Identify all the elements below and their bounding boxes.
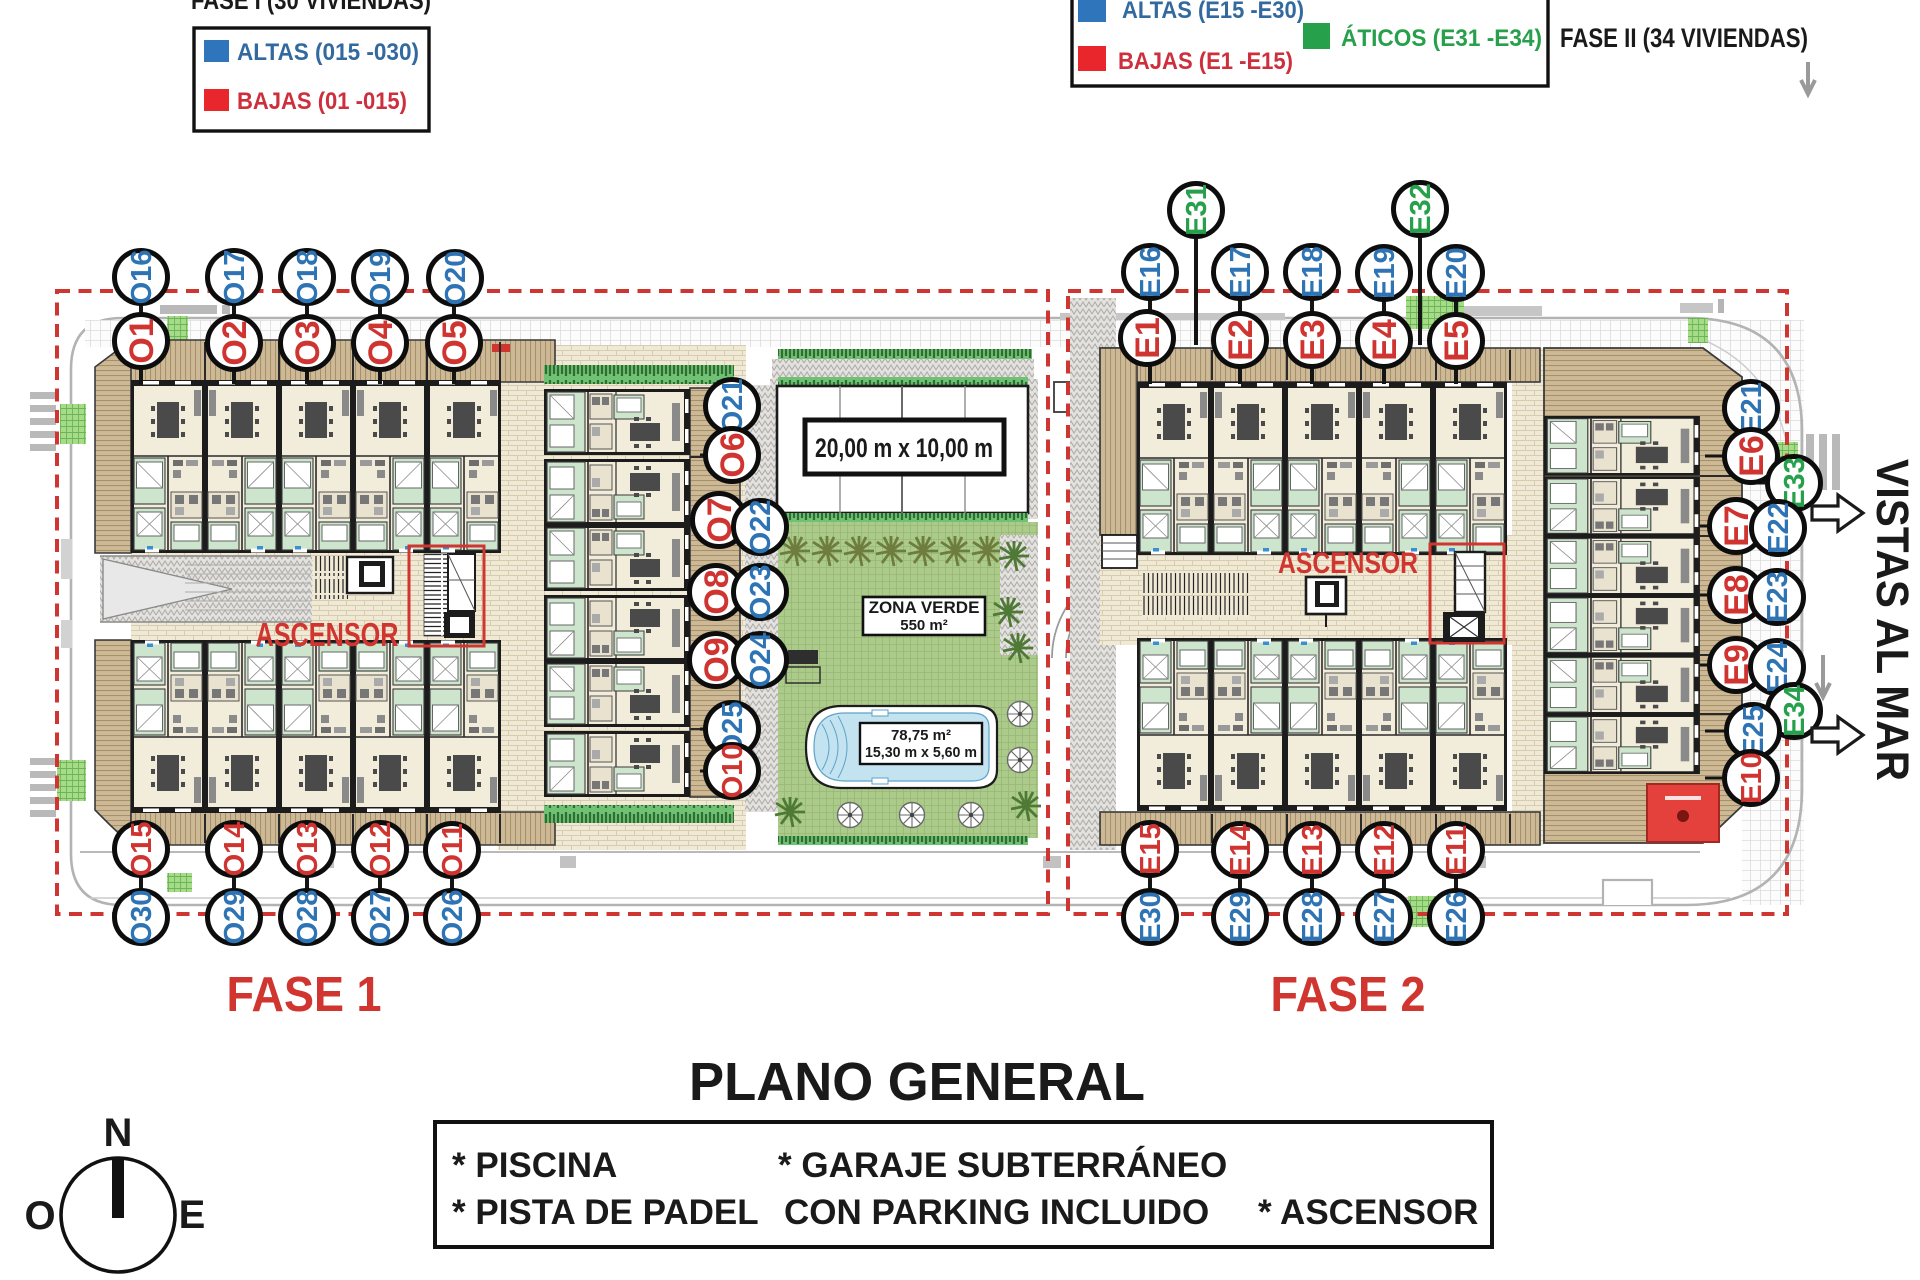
svg-text:O9: O9: [698, 637, 736, 682]
svg-text:O6: O6: [714, 432, 752, 477]
svg-text:E15: E15: [1135, 823, 1167, 875]
svg-text:78,75 m²: 78,75 m²: [891, 727, 951, 744]
svg-text:O3: O3: [289, 320, 327, 365]
svg-text:O21: O21: [717, 379, 749, 434]
svg-text:E6: E6: [1733, 435, 1771, 477]
svg-text:FASE I (30 VIVIENDAS): FASE I (30 VIVIENDAS): [191, 0, 431, 15]
svg-text:O18: O18: [292, 250, 324, 305]
svg-text:O24: O24: [745, 633, 777, 688]
svg-text:20,00 m x 10,00 m: 20,00 m x 10,00 m: [815, 433, 993, 463]
svg-text:O20: O20: [440, 251, 472, 306]
svg-text:E4: E4: [1366, 319, 1404, 361]
svg-text:O1: O1: [123, 318, 161, 363]
svg-text:E29: E29: [1225, 891, 1257, 943]
svg-text:CON PARKING INCLUIDO: CON PARKING INCLUIDO: [784, 1193, 1209, 1232]
svg-text:O26: O26: [437, 890, 469, 945]
svg-text:O2: O2: [216, 320, 254, 365]
svg-text:E17: E17: [1225, 246, 1257, 298]
svg-text:N: N: [104, 1111, 133, 1155]
svg-text:FASE 2: FASE 2: [1271, 968, 1426, 1022]
svg-text:ALTAS (015 -030): ALTAS (015 -030): [237, 39, 419, 66]
svg-text:O30: O30: [126, 890, 158, 945]
svg-text:ÁTICOS (E31 -E34): ÁTICOS (E31 -E34): [1341, 24, 1542, 52]
svg-text:ALTAS (E15 -E30): ALTAS (E15 -E30): [1122, 0, 1304, 24]
svg-text:E26: E26: [1441, 891, 1473, 943]
svg-text:O27: O27: [365, 890, 397, 945]
svg-text:E30: E30: [1135, 891, 1167, 943]
svg-text:E23: E23: [1762, 571, 1794, 623]
svg-text:O19: O19: [365, 251, 397, 306]
svg-text:O23: O23: [745, 565, 777, 620]
svg-text:O17: O17: [219, 250, 251, 305]
svg-text:E10: E10: [1736, 752, 1768, 804]
svg-text:* PISCINA: * PISCINA: [452, 1146, 617, 1185]
svg-text:E22: E22: [1763, 502, 1795, 554]
svg-text:VISTAS AL MAR: VISTAS AL MAR: [1867, 459, 1918, 781]
svg-text:ASCENSOR: ASCENSOR: [1278, 547, 1418, 580]
svg-text:O16: O16: [126, 250, 158, 305]
svg-text:O14: O14: [219, 822, 251, 877]
svg-text:E2: E2: [1222, 319, 1260, 361]
svg-text:E28: E28: [1297, 891, 1329, 943]
svg-text:PLANO GENERAL: PLANO GENERAL: [689, 1052, 1145, 1112]
svg-text:E21: E21: [1736, 382, 1768, 434]
svg-text:FASE II (34 VIVIENDAS): FASE II (34 VIVIENDAS): [1560, 23, 1808, 53]
svg-text:ASCENSOR: ASCENSOR: [256, 616, 399, 653]
svg-text:E14: E14: [1225, 824, 1257, 876]
svg-text:O12: O12: [365, 822, 397, 877]
svg-text:15,30 m x 5,60 m: 15,30 m x 5,60 m: [865, 745, 977, 761]
svg-text:E12: E12: [1369, 824, 1401, 876]
svg-text:O15: O15: [126, 822, 158, 877]
svg-text:O4: O4: [362, 320, 400, 365]
svg-text:O22: O22: [745, 500, 777, 555]
svg-text:E18: E18: [1297, 246, 1329, 298]
svg-text:E3: E3: [1294, 319, 1332, 361]
svg-text:E13: E13: [1297, 824, 1329, 876]
svg-text:O5: O5: [436, 320, 474, 365]
svg-text:O8: O8: [698, 569, 736, 614]
svg-text:* ASCENSOR: * ASCENSOR: [1258, 1193, 1478, 1232]
svg-text:550 m²: 550 m²: [900, 617, 948, 634]
svg-text:E31: E31: [1181, 184, 1213, 236]
svg-text:FASE 1: FASE 1: [227, 968, 382, 1022]
svg-text:O10: O10: [717, 744, 749, 799]
svg-text:O13: O13: [292, 822, 324, 877]
svg-text:BAJAS (E1 -E15): BAJAS (E1 -E15): [1118, 48, 1293, 75]
svg-text:E19: E19: [1369, 247, 1401, 299]
svg-text:ZONA VERDE: ZONA VERDE: [869, 598, 980, 617]
svg-text:O29: O29: [219, 890, 251, 945]
svg-text:E25: E25: [1738, 705, 1770, 757]
svg-text:E16: E16: [1135, 246, 1167, 298]
svg-text:O: O: [24, 1194, 55, 1238]
svg-text:E34: E34: [1779, 685, 1811, 737]
svg-text:E32: E32: [1405, 183, 1437, 235]
svg-text:E5: E5: [1438, 320, 1476, 362]
svg-text:E: E: [179, 1193, 206, 1237]
svg-text:* GARAJE SUBTERRÁNEO: * GARAJE SUBTERRÁNEO: [778, 1145, 1227, 1185]
svg-text:E1: E1: [1129, 317, 1167, 359]
svg-text:E27: E27: [1369, 891, 1401, 943]
svg-text:O28: O28: [292, 890, 324, 945]
svg-text:BAJAS (01 -015): BAJAS (01 -015): [237, 88, 407, 115]
svg-text:E11: E11: [1441, 825, 1473, 875]
svg-text:E20: E20: [1441, 247, 1473, 299]
svg-text:O11: O11: [437, 823, 469, 876]
svg-text:* PISTA DE PADEL: * PISTA DE PADEL: [452, 1193, 759, 1232]
